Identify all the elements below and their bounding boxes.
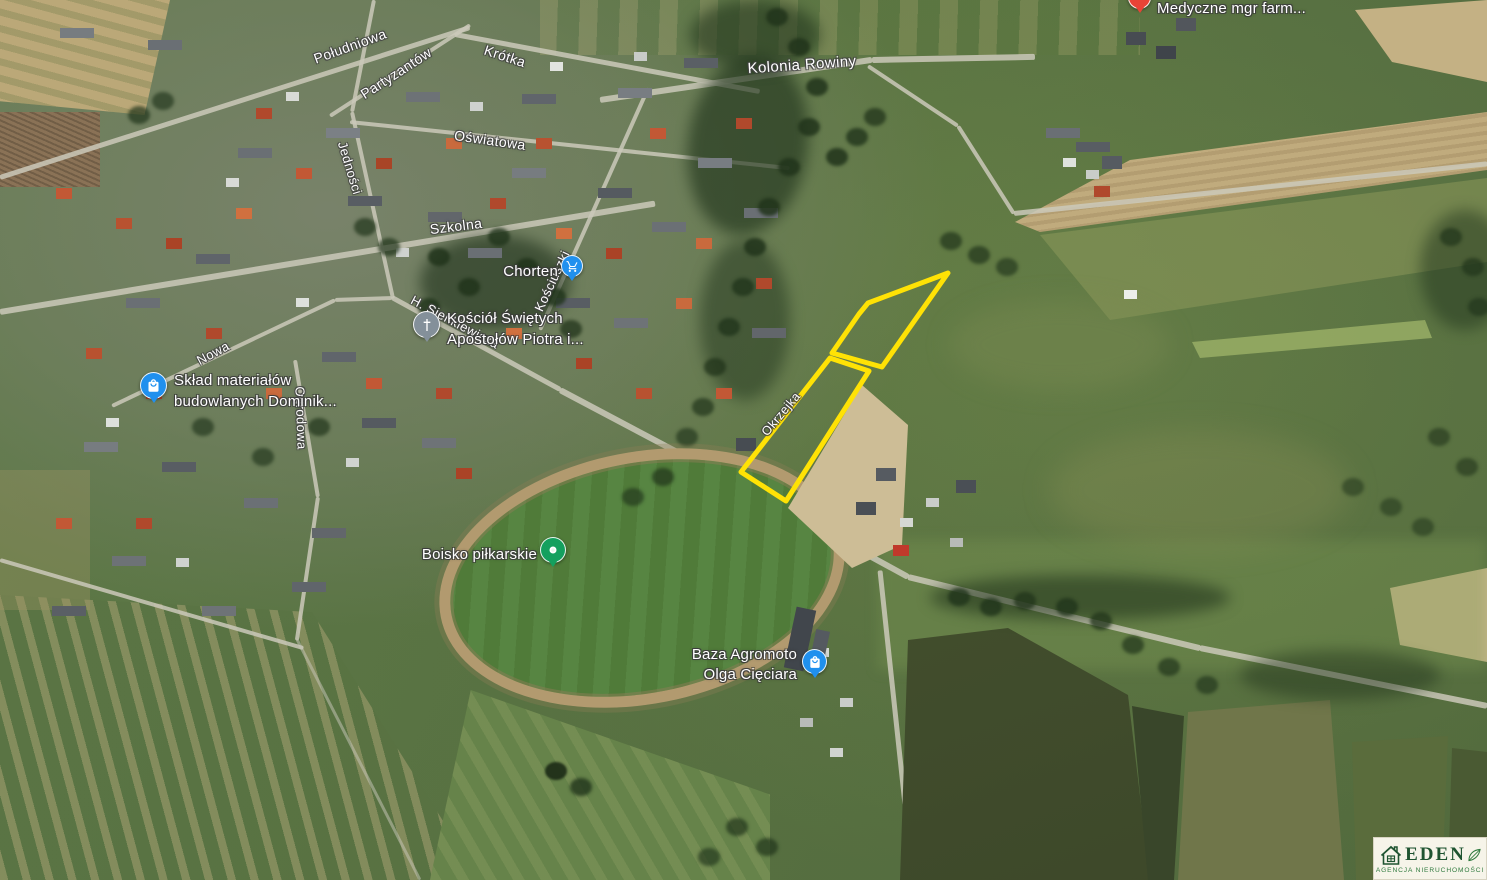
poi-label-football-pitch[interactable]: Boisko piłkarskie [422,544,537,565]
logo-subtitle-text: AGENCJA NIERUCHOMOŚCI [1376,867,1484,874]
poi-label-agromoto-line2: Olga Cięciara [692,665,797,685]
terrain-base [0,0,1487,880]
dot-glyph [547,544,559,556]
agency-logo: EDEN AGENCJA NIERUCHOMOŚCI [1373,837,1487,880]
bag-glyph [808,655,822,669]
satellite-map[interactable]: Południowa Partyzantów Krótka Jedności O… [0,0,1487,880]
poi-label-church-line2: Apostołów Piotra i... [447,329,584,350]
shopping-bag-icon[interactable] [802,649,827,674]
poi-label-building-materials-line1: Skład materiałów [174,370,337,391]
house-icon [1379,844,1403,866]
leaf-icon [1468,848,1481,862]
health-glyph [1134,0,1146,4]
bag-glyph [146,378,161,393]
park-pin-icon[interactable] [540,537,566,563]
cross-glyph [419,317,435,333]
poi-label-medical[interactable]: Medyczne mgr farm... [1157,0,1306,19]
cart-glyph [566,260,579,273]
poi-label-building-materials[interactable]: Skład materiałów budowlanych Dominik... [174,370,337,412]
poi-label-building-materials-line2: budowlanych Dominik... [174,391,337,412]
poi-label-agromoto[interactable]: Baza Agromoto Olga Cięciara [692,645,797,685]
shopping-cart-icon[interactable] [561,255,583,277]
poi-label-church[interactable]: Kościół Świętych Apostołów Piotra i... [447,308,584,350]
poi-label-agromoto-line1: Baza Agromoto [692,645,797,665]
church-icon[interactable] [413,311,440,338]
shopping-bag-icon[interactable] [140,372,167,399]
poi-label-chorten[interactable]: Chorten [503,261,558,282]
poi-label-church-line1: Kościół Świętych [447,308,584,329]
logo-brand-text: EDEN [1405,845,1466,864]
